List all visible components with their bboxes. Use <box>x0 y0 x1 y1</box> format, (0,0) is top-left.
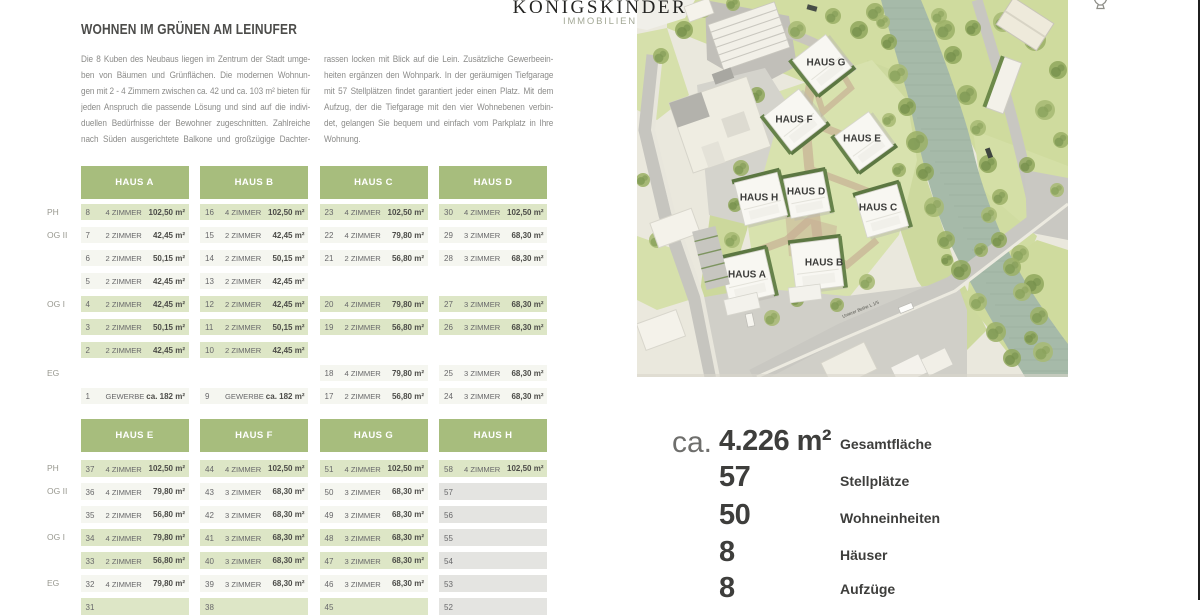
svg-text:HAUS H: HAUS H <box>740 193 778 204</box>
svg-text:HAUS C: HAUS C <box>859 203 897 214</box>
svg-text:HAUS G: HAUS G <box>807 58 846 69</box>
svg-text:HAUS E: HAUS E <box>843 134 881 145</box>
svg-text:HAUS A: HAUS A <box>728 270 766 281</box>
svg-text:HAUS D: HAUS D <box>787 187 825 198</box>
svg-text:HAUS F: HAUS F <box>775 115 812 126</box>
svg-text:HAUS B: HAUS B <box>805 258 843 269</box>
